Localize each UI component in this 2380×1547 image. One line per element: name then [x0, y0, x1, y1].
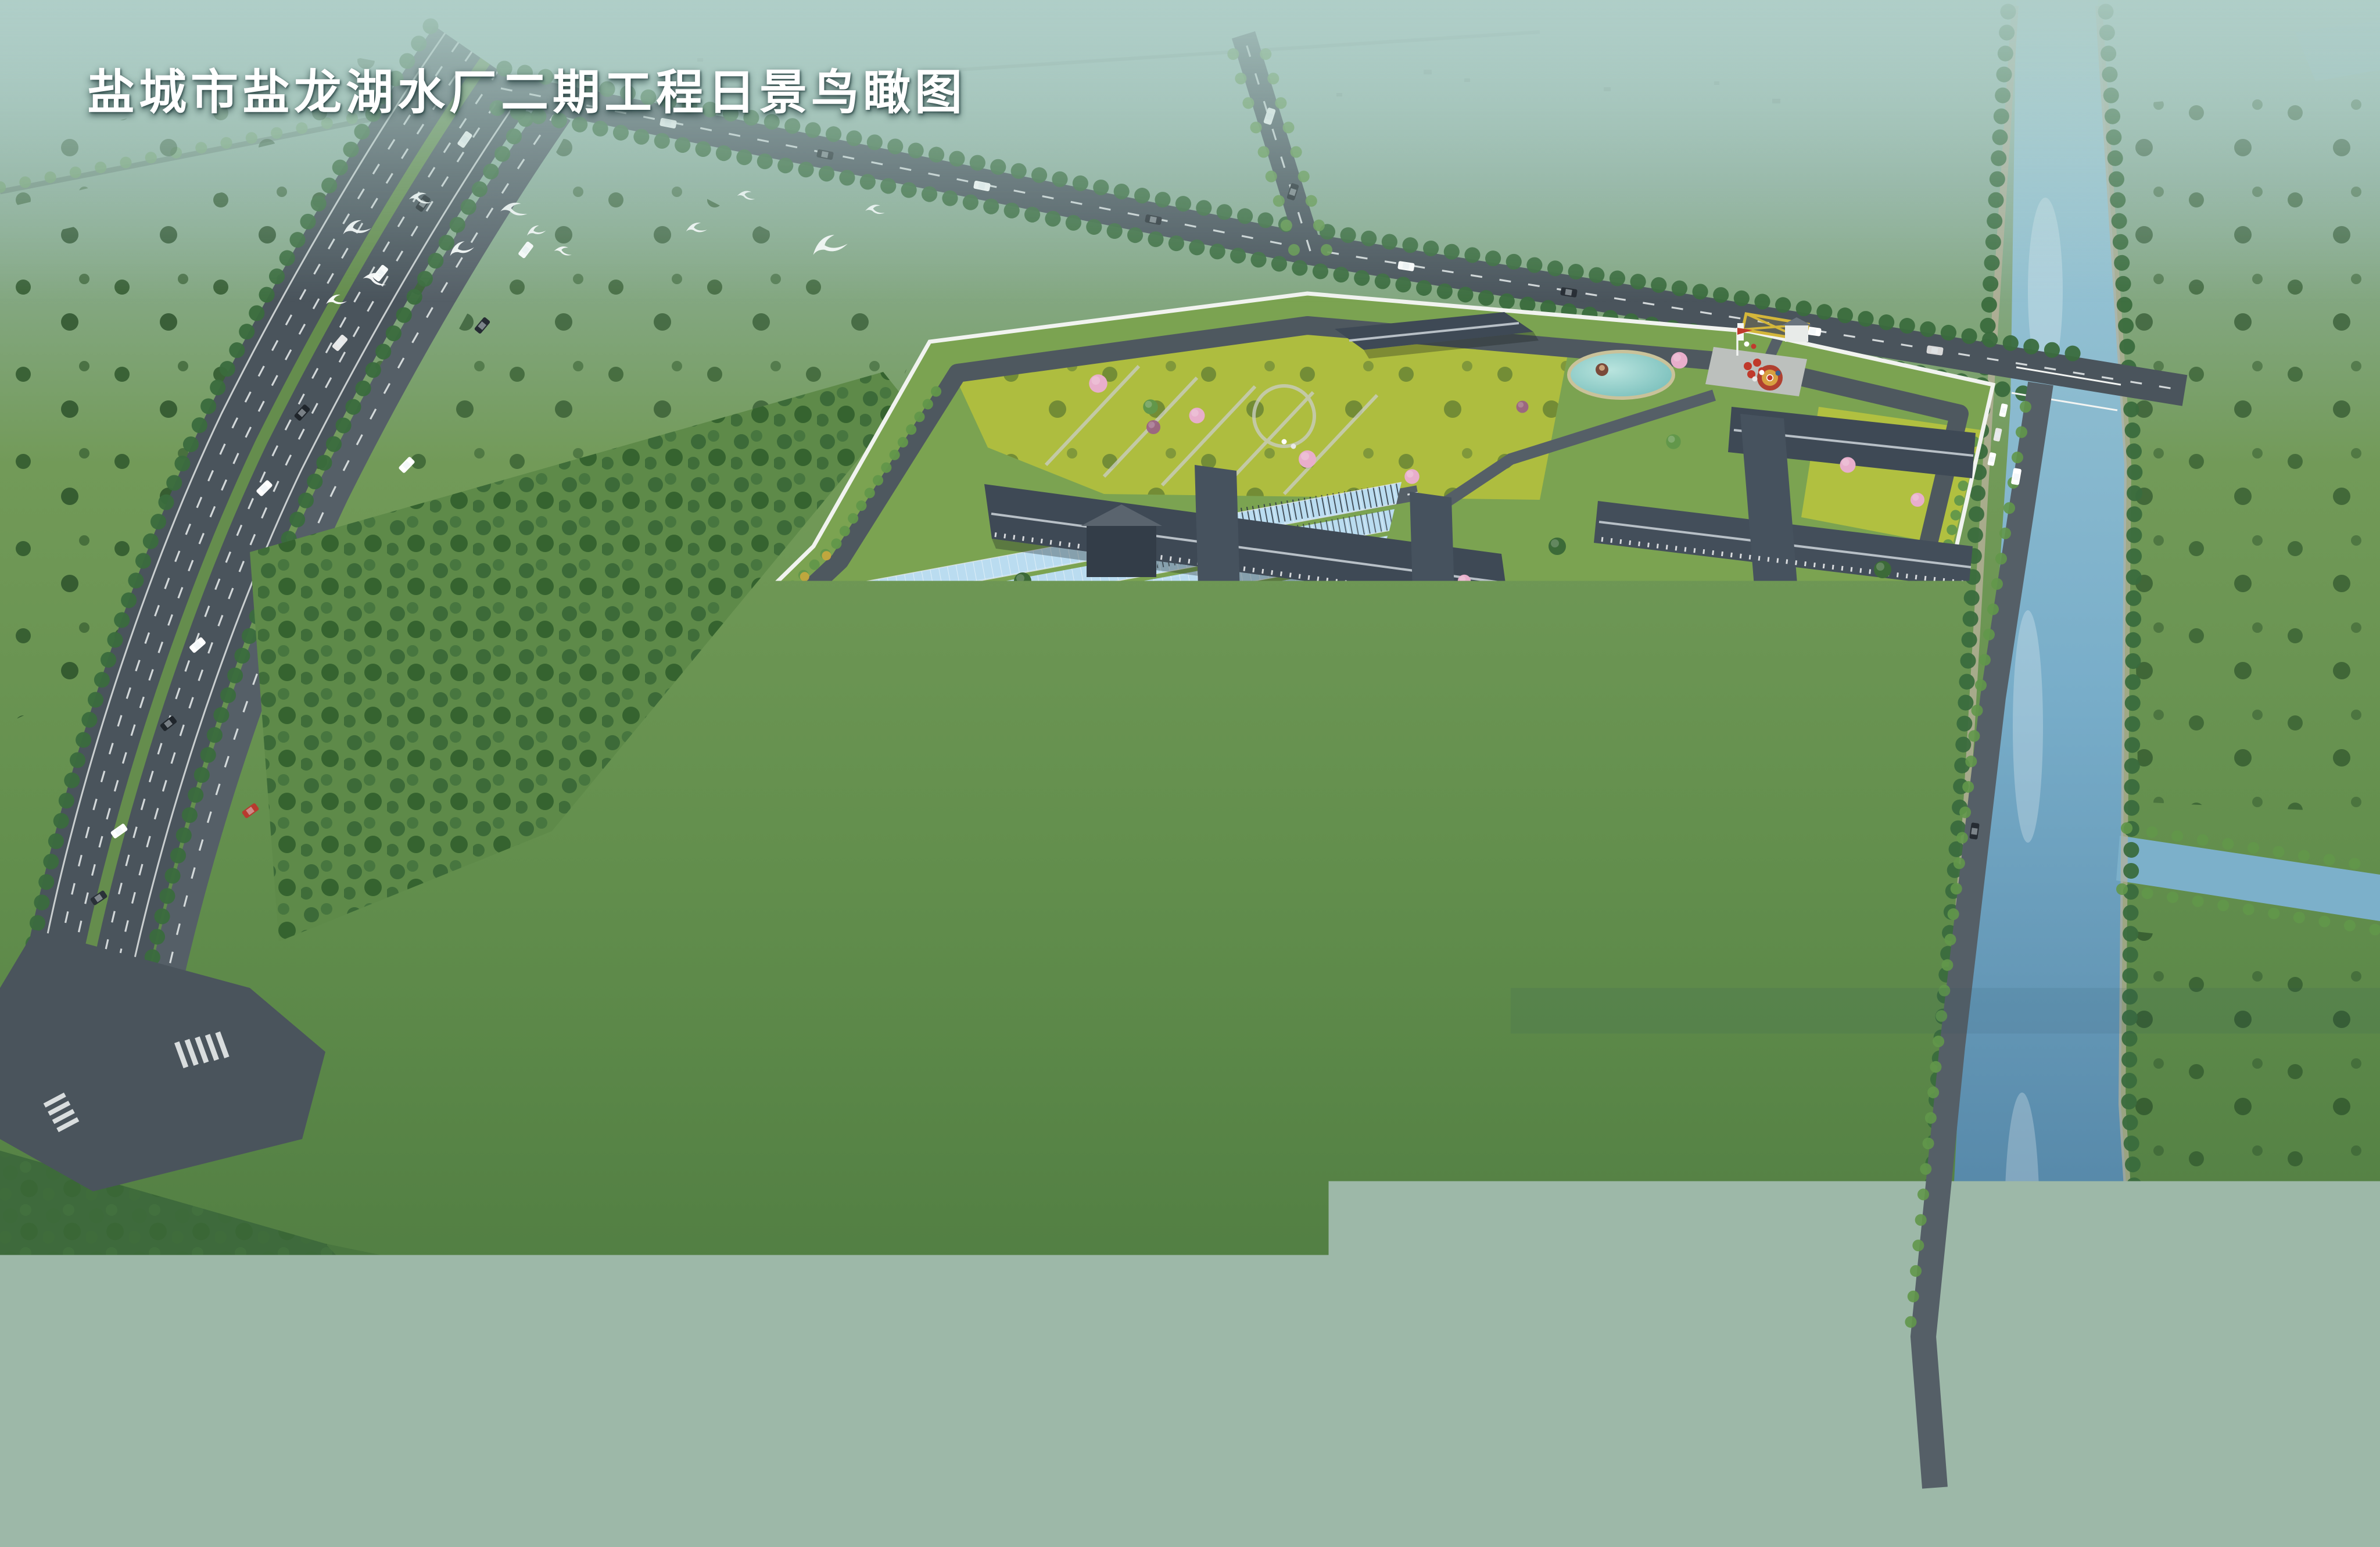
scene [0, 0, 2380, 1547]
pump-station [657, 822, 874, 959]
silos [1382, 608, 1421, 656]
rendering-canvas: 盐城市盐龙湖水厂二期工程日景鸟瞰图 [0, 0, 2380, 1547]
haze-overlay [0, 0, 2380, 302]
garden-pond [1569, 352, 1673, 398]
cool-cast-overlay [1511, 988, 2380, 1547]
pond-pavilion [1596, 363, 1608, 376]
page-title: 盐城市盐龙湖水厂二期工程日景鸟瞰图 [87, 53, 966, 123]
